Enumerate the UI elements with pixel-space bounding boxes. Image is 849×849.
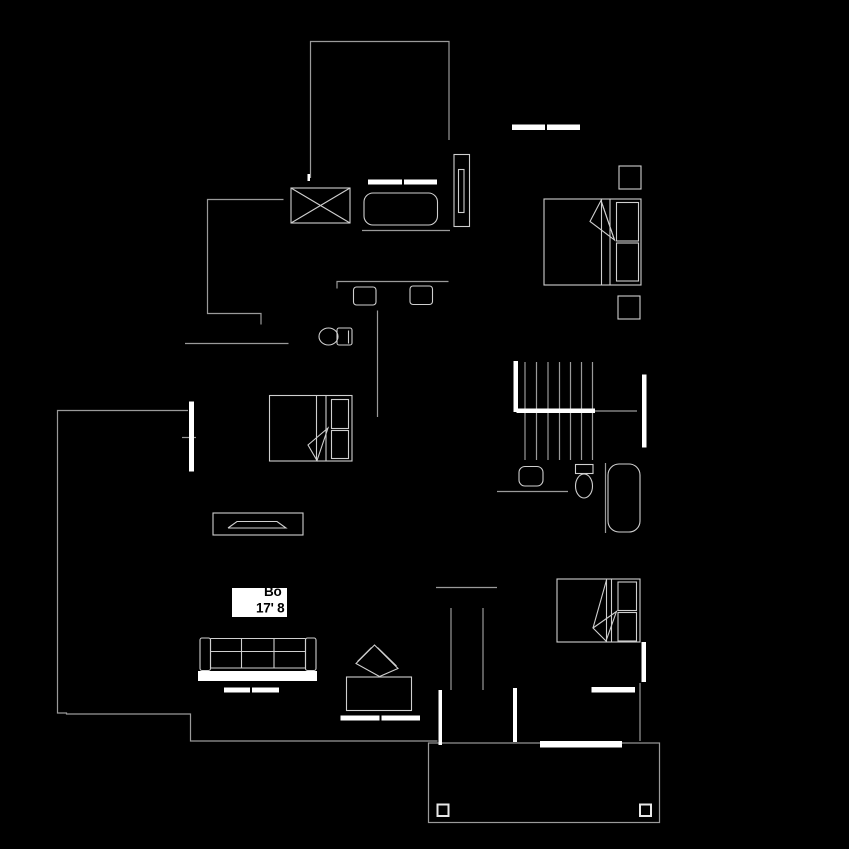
wall-segment	[513, 688, 517, 742]
stool	[354, 287, 377, 305]
wall-segment	[540, 741, 622, 748]
nightstand	[619, 166, 641, 189]
porch-post	[640, 805, 651, 817]
sofa-cushions	[211, 639, 306, 669]
sofa	[200, 638, 316, 671]
wall-segment	[439, 690, 443, 745]
wall-segment	[308, 174, 311, 181]
blanket-fold	[308, 428, 328, 461]
solid-walls	[189, 125, 647, 748]
wall-segment	[517, 409, 596, 414]
room-label-dimensions: 17' 8	[256, 601, 285, 616]
pillow	[617, 243, 639, 281]
wall-segment	[642, 375, 647, 448]
table-bar-segment	[341, 716, 380, 721]
fireplace-side-lines	[451, 608, 483, 690]
bathtub-mid	[608, 464, 640, 532]
pillow	[618, 613, 637, 642]
bed-lines	[317, 396, 327, 462]
bathtub-upper	[364, 193, 438, 225]
toilet-mid	[576, 465, 594, 499]
pillow	[617, 203, 639, 242]
toilet-upper	[319, 328, 352, 345]
wall-segment	[368, 180, 402, 185]
blanket-fold	[590, 201, 615, 241]
room-label: Bo 17' 8	[232, 584, 287, 617]
side-table	[347, 677, 412, 711]
wall-segment	[404, 180, 437, 185]
stool	[410, 286, 433, 305]
dresser-handle	[228, 522, 286, 529]
bed-top-right	[544, 199, 641, 285]
porch-outline	[429, 743, 660, 823]
sofa-arm	[200, 638, 211, 671]
bed-lines	[602, 199, 611, 285]
fireplace	[436, 588, 497, 691]
counter-stools	[354, 286, 433, 305]
floorplan-canvas: Bo 17' 8	[0, 0, 849, 849]
table-bar-segment	[382, 716, 421, 721]
bed-bottom-right	[557, 579, 640, 642]
bonus-room-outline	[311, 42, 450, 179]
wall-segment	[512, 125, 545, 131]
wall-segment	[642, 642, 647, 682]
sink	[519, 467, 543, 487]
dresser	[213, 513, 303, 535]
pillow	[332, 400, 349, 429]
linen-cabinet	[454, 155, 470, 227]
floor-plan-svg: Bo 17' 8	[0, 0, 849, 849]
wall-segment	[592, 687, 636, 693]
pillow	[618, 582, 637, 611]
coffee-table-segment	[224, 688, 250, 693]
washer-dryer-unit	[291, 188, 350, 223]
wall-segment	[189, 402, 194, 472]
porch	[429, 743, 660, 823]
pillow	[332, 431, 349, 459]
nightstand	[618, 296, 640, 319]
porch-post	[438, 805, 449, 817]
armchair	[356, 645, 398, 677]
wall-line	[208, 200, 284, 325]
bathroom-mid-fixtures	[519, 464, 640, 532]
bed-left	[270, 396, 353, 462]
sofa-base	[198, 671, 317, 681]
sofa-arm	[306, 638, 317, 671]
wall-segment	[547, 125, 580, 131]
coffee-table-segment	[252, 688, 279, 693]
room-label-name: Bo	[264, 584, 282, 599]
x-cross	[291, 188, 350, 223]
wall-segment	[514, 361, 519, 412]
